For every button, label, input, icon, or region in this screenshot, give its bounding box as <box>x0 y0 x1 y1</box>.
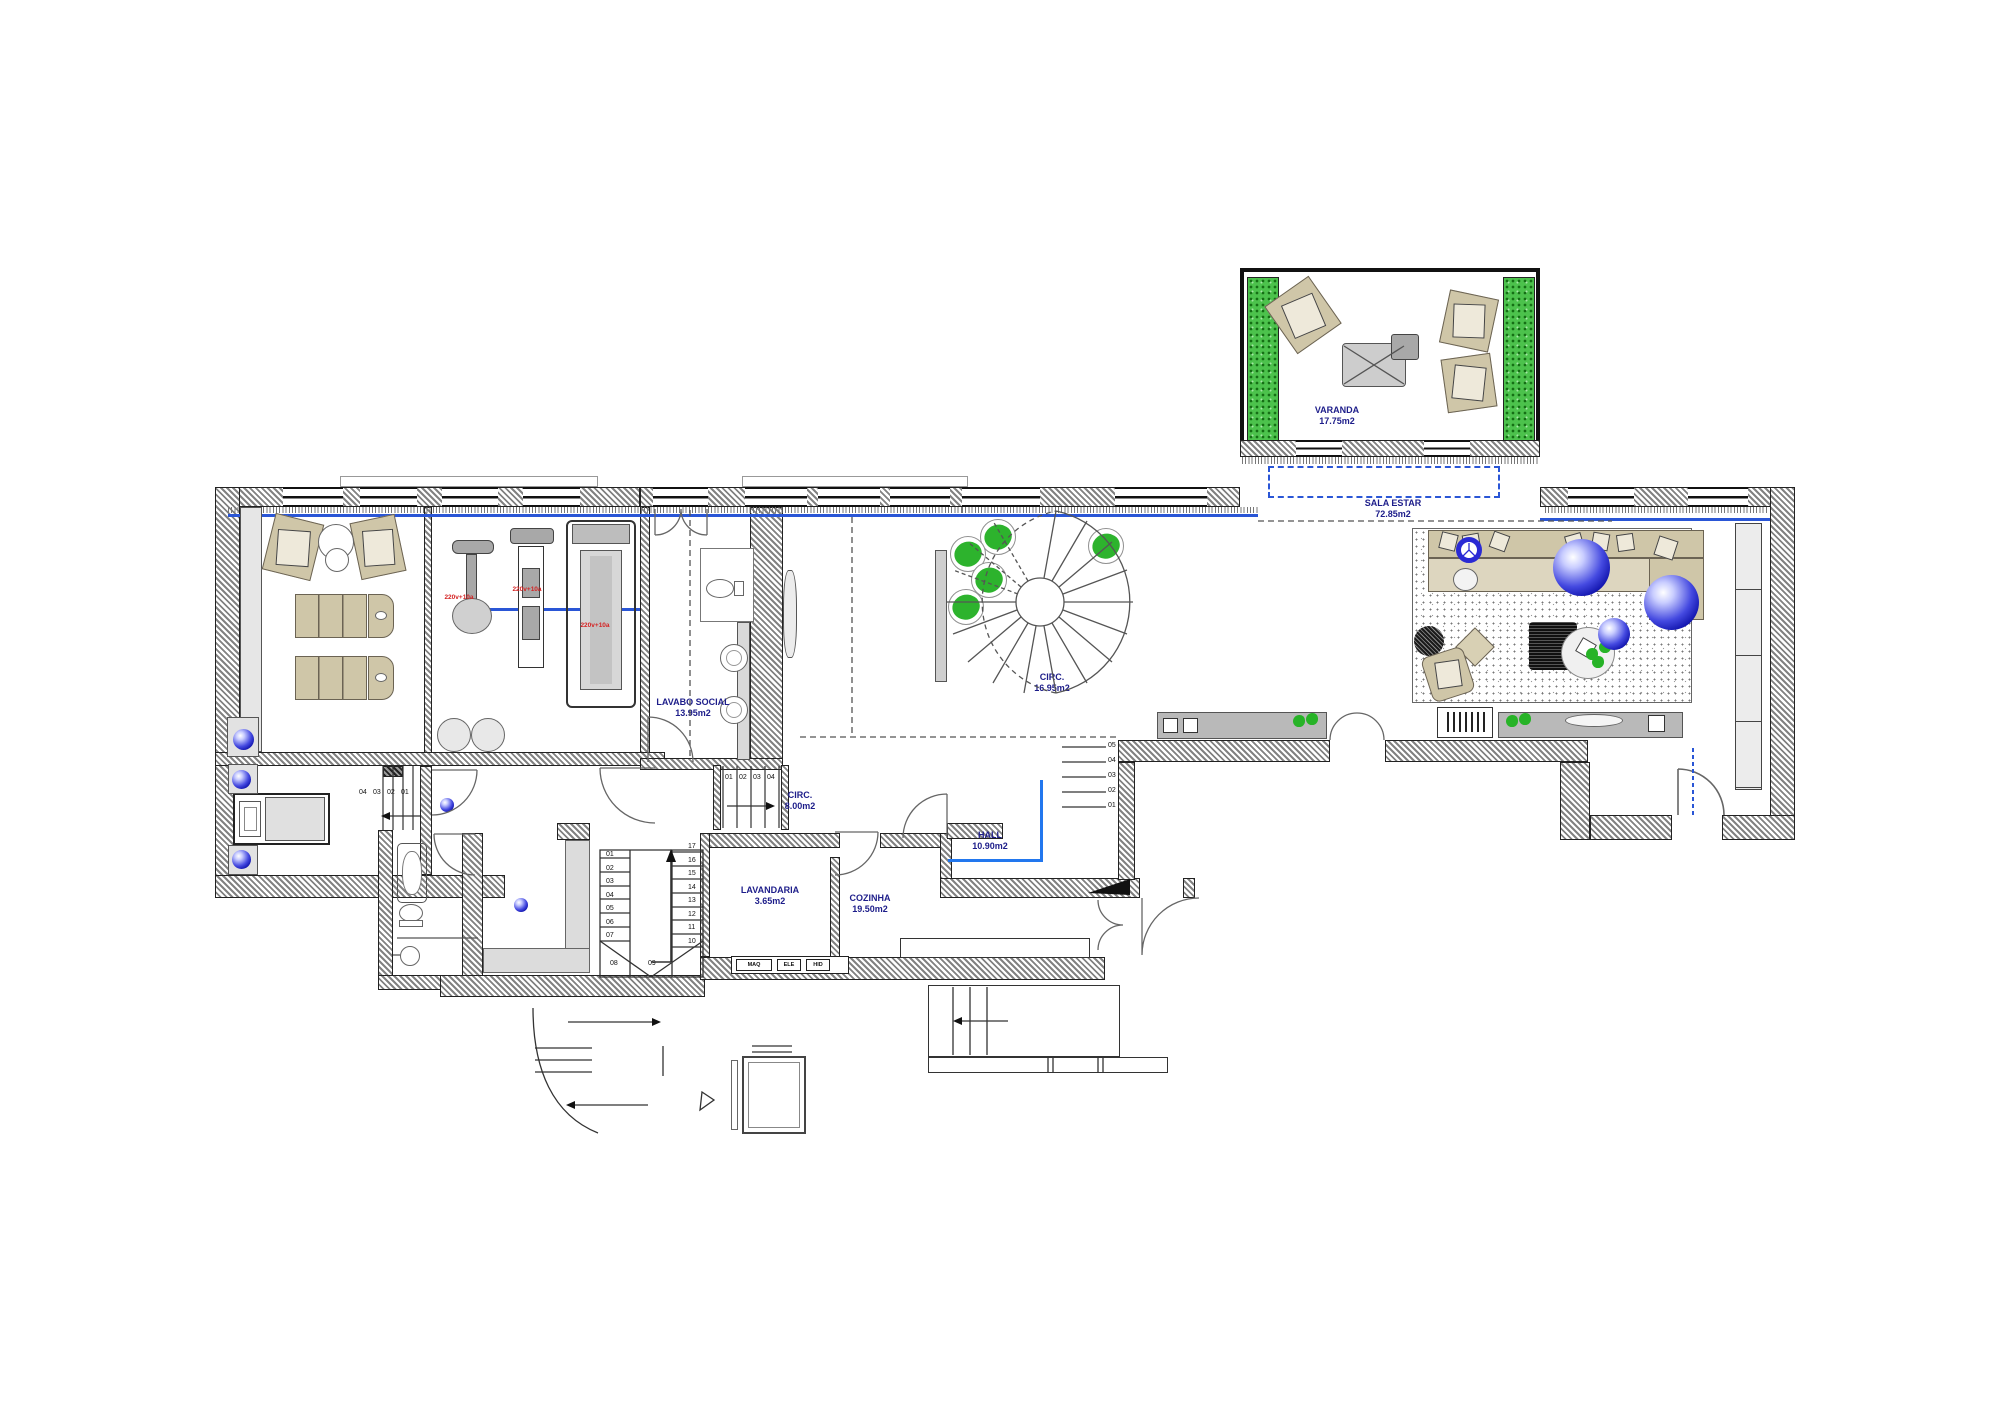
bathroom-lines <box>393 938 478 955</box>
open-boundary-lines <box>690 510 1612 760</box>
hall-steps <box>1062 747 1106 807</box>
ring-spokes <box>1463 543 1475 556</box>
door-arcs <box>432 509 1724 955</box>
main-staircase <box>600 849 703 977</box>
service-steps <box>723 766 779 828</box>
linework-overlay <box>0 0 2000 1414</box>
spiral-staircase <box>947 511 1133 693</box>
bedroom-steps <box>381 766 420 830</box>
table-fold-lines <box>1344 346 1404 384</box>
hall-door-wedge <box>1088 879 1130 895</box>
entry-steps <box>953 987 1103 1073</box>
floor-plan: VARANDA17.75m2 <box>0 0 2000 1414</box>
walkway-marks <box>533 1008 792 1133</box>
